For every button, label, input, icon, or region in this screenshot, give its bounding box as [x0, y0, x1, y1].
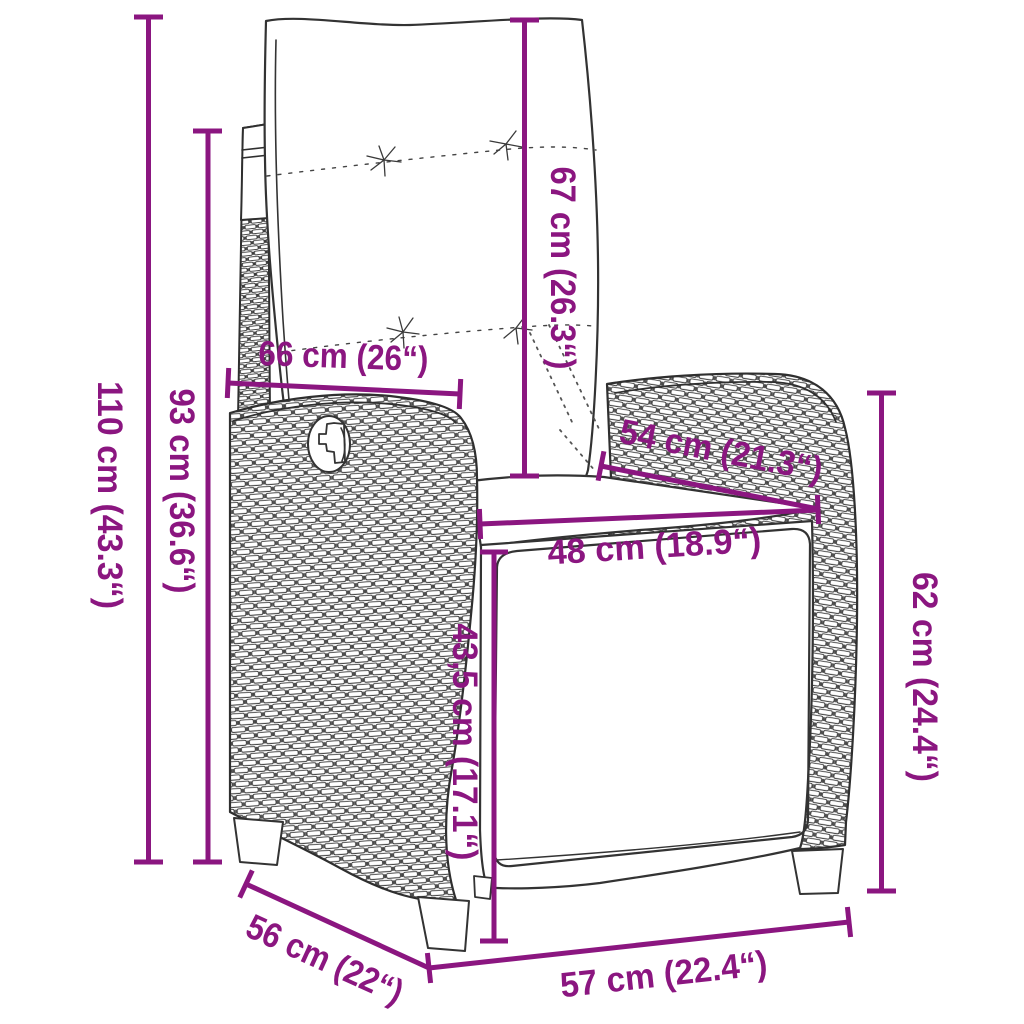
svg-text:43,5 cm (17.1“): 43,5 cm (17.1“): [445, 624, 484, 861]
svg-text:67 cm (26.3“): 67 cm (26.3“): [543, 167, 582, 370]
svg-text:66 cm (26“): 66 cm (26“): [258, 334, 429, 379]
svg-text:110 cm (43.3“): 110 cm (43.3“): [90, 381, 129, 609]
svg-text:62 cm (24.4“): 62 cm (24.4“): [905, 572, 944, 782]
svg-text:93 cm (36.6“): 93 cm (36.6“): [162, 389, 201, 594]
